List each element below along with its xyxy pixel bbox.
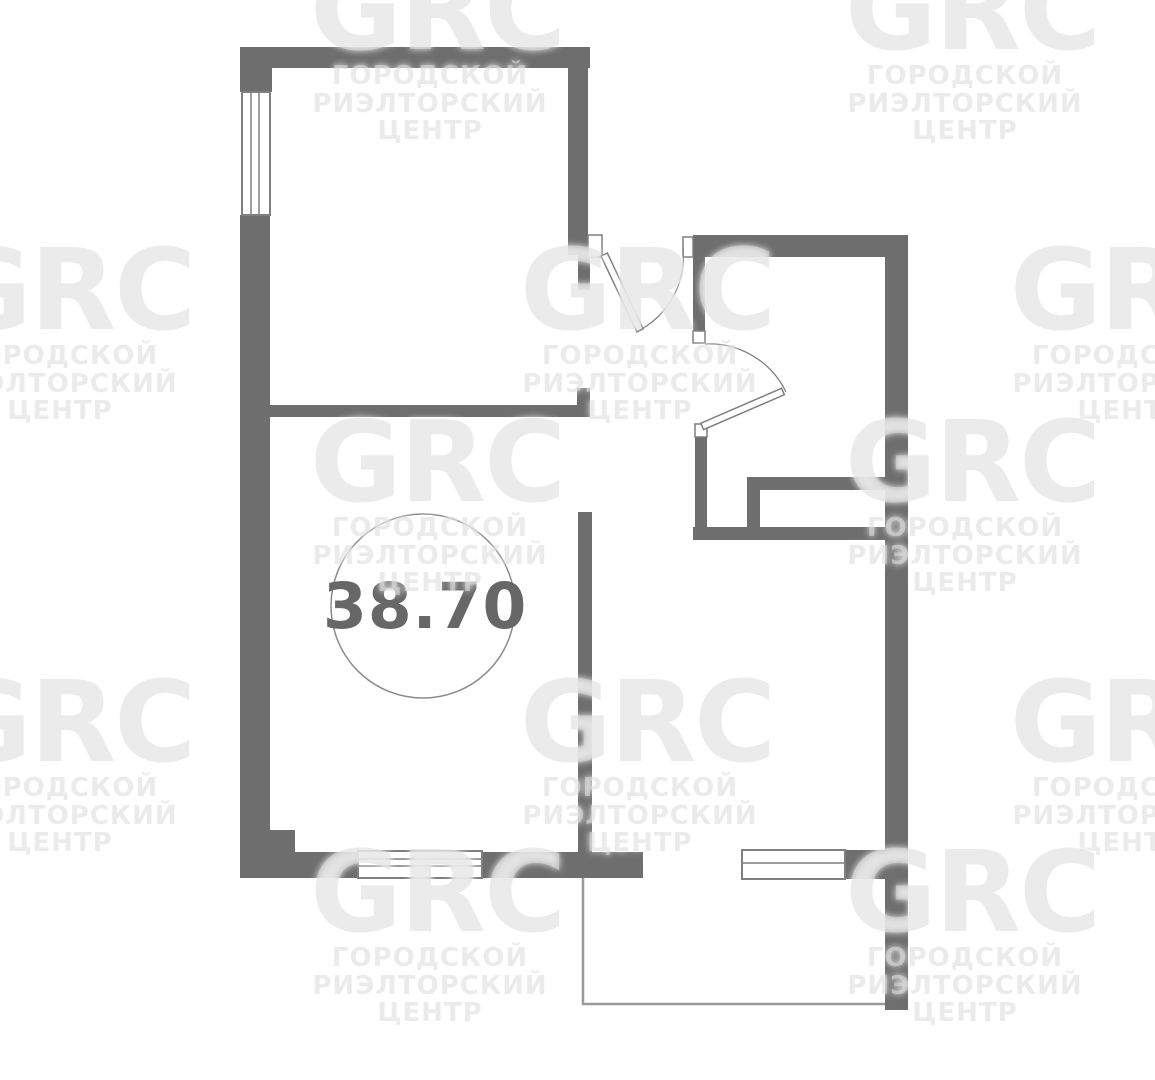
- wall-stub-below-entrance: [578, 255, 590, 290]
- wall-bottom-middle: [482, 852, 643, 878]
- door-leaf: [601, 253, 643, 332]
- window-bottom-left-room: [358, 851, 482, 878]
- wall-stub-above-divider: [577, 388, 590, 405]
- door-frame: [693, 331, 705, 343]
- wall-right-room-top: [693, 235, 908, 257]
- wall-bottom-left: [240, 852, 358, 878]
- wall-bottom-right-block: [845, 850, 885, 879]
- door-leaf: [701, 388, 785, 429]
- wall-interior-partition: [578, 512, 592, 852]
- wall-room-divider: [270, 405, 590, 417]
- wall-right-room-left-upper: [693, 257, 705, 332]
- wall-top-left-corner: [240, 47, 272, 92]
- area-value: 38.70: [323, 570, 527, 643]
- floorplan-svg: [0, 0, 1155, 1080]
- wall-top-left-room-right: [568, 47, 588, 255]
- wall-right-room-left-lower: [695, 437, 707, 540]
- floorplan-image: 38.70 GRC ГОРОДСКОЙ РИЭЛТОРСКИЙ ЦЕНТР GR…: [0, 0, 1155, 1080]
- doors: [588, 235, 786, 437]
- wall-shaft-top: [747, 477, 885, 490]
- wall-top-left-room-top: [240, 47, 590, 68]
- door-frame: [588, 235, 602, 257]
- bathroom-door: [693, 331, 786, 437]
- wall-right-exterior: [885, 235, 908, 1010]
- area-badge: 38.70: [323, 570, 523, 643]
- wall-right-room-bottom: [693, 527, 885, 540]
- wall-pier-bottom-left: [270, 830, 295, 852]
- door-swing-arc: [705, 344, 786, 392]
- wall-left-exterior: [240, 215, 270, 878]
- window-bottom-right-room: [742, 850, 845, 879]
- balcony-outline: [583, 878, 885, 1004]
- door-swing-arc: [636, 248, 683, 332]
- door-frame: [683, 237, 693, 257]
- entrance-door: [588, 235, 693, 332]
- window-left-wall: [242, 92, 270, 215]
